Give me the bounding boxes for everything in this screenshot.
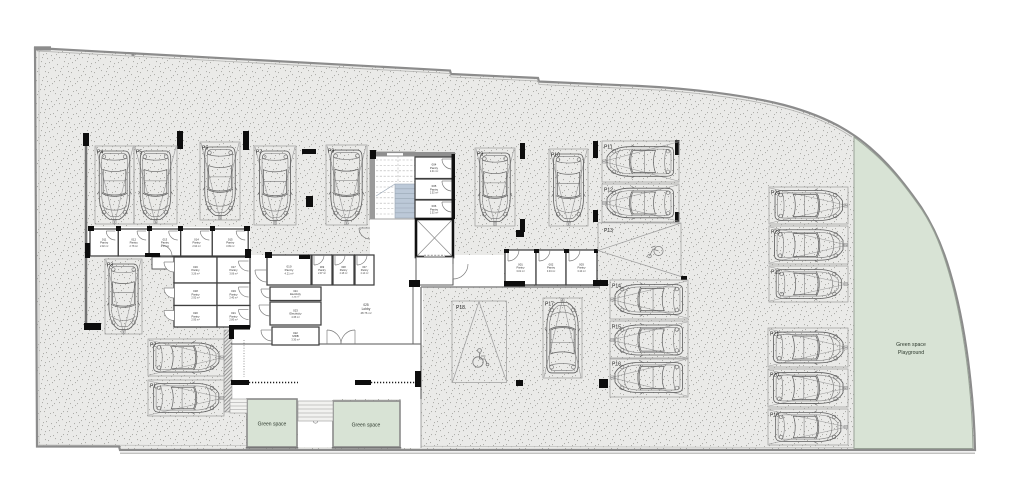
- svg-text:Green space: Green space: [258, 422, 287, 428]
- svg-text:P21: P21: [770, 332, 779, 338]
- svg-text:4.35 m²: 4.35 m²: [291, 316, 299, 319]
- svg-text:3.30 m²: 3.30 m²: [291, 338, 299, 341]
- svg-text:Green space: Green space: [352, 423, 381, 429]
- svg-text:3.04 m²: 3.04 m²: [547, 270, 555, 273]
- svg-text:P22: P22: [771, 270, 780, 276]
- svg-text:P2: P2: [150, 343, 156, 349]
- svg-text:Pantry: Pantry: [318, 268, 326, 272]
- svg-text:2.80 m²: 2.80 m²: [229, 319, 237, 322]
- svg-text:2.07 m²: 2.07 m²: [318, 272, 326, 275]
- svg-text:P9: P9: [477, 152, 483, 158]
- svg-text:P15: P15: [612, 325, 621, 331]
- svg-text:2.94 m²: 2.94 m²: [192, 245, 200, 248]
- svg-text:P8: P8: [328, 149, 334, 155]
- svg-text:P1: P1: [150, 384, 156, 390]
- svg-text:Electricity: Electricity: [290, 293, 301, 296]
- svg-text:P18: P18: [456, 305, 465, 311]
- svg-text:3.06 m²: 3.06 m²: [229, 272, 237, 275]
- svg-text:Playground: Playground: [898, 350, 924, 356]
- svg-text:48.76 m²: 48.76 m²: [360, 311, 371, 315]
- svg-text:2.92 m²: 2.92 m²: [100, 245, 108, 248]
- svg-text:2.40 m²: 2.40 m²: [229, 297, 237, 300]
- svg-text:P19: P19: [770, 413, 779, 419]
- svg-text:P6: P6: [202, 146, 208, 152]
- svg-text:2.92 m²: 2.92 m²: [191, 297, 199, 300]
- svg-text:3.09 m²: 3.09 m²: [226, 245, 234, 248]
- svg-text:P13: P13: [604, 228, 613, 234]
- svg-text:2.18 m²: 2.18 m²: [340, 272, 348, 275]
- svg-text:Pantry: Pantry: [285, 268, 294, 272]
- svg-text:Green space: Green space: [896, 342, 926, 348]
- svg-text:P14: P14: [612, 284, 621, 290]
- svg-text:2.41 m²: 2.41 m²: [430, 170, 438, 173]
- svg-text:P3: P3: [107, 263, 113, 269]
- svg-text:2.95 m²: 2.95 m²: [191, 319, 199, 322]
- svg-text:2.52 m²: 2.52 m²: [430, 192, 438, 195]
- svg-text:4.21 m²: 4.21 m²: [285, 272, 294, 276]
- svg-text:P16: P16: [612, 362, 621, 368]
- svg-text:Pantry: Pantry: [340, 268, 348, 272]
- svg-text:2.14 m²: 2.14 m²: [361, 272, 369, 275]
- svg-text:P20: P20: [770, 373, 779, 379]
- svg-text:P17: P17: [545, 302, 554, 308]
- svg-text:2.52 m²: 2.52 m²: [430, 212, 438, 215]
- svg-text:P10: P10: [551, 153, 560, 159]
- svg-text:P12: P12: [604, 188, 613, 194]
- svg-text:3.10 m²: 3.10 m²: [577, 270, 585, 273]
- svg-text:P11: P11: [604, 145, 613, 151]
- svg-text:P23: P23: [771, 230, 780, 236]
- svg-text:2.78 m²: 2.78 m²: [130, 245, 138, 248]
- svg-text:2.40 m²: 2.40 m²: [292, 296, 300, 299]
- svg-text:P5: P5: [136, 150, 142, 156]
- svg-text:P4: P4: [97, 150, 103, 156]
- svg-text:3.01 m²: 3.01 m²: [516, 270, 524, 273]
- svg-text:P7: P7: [256, 150, 262, 156]
- svg-text:Pantry: Pantry: [361, 268, 369, 272]
- svg-text:3.26 m²: 3.26 m²: [191, 272, 199, 275]
- svg-text:P24: P24: [771, 191, 780, 197]
